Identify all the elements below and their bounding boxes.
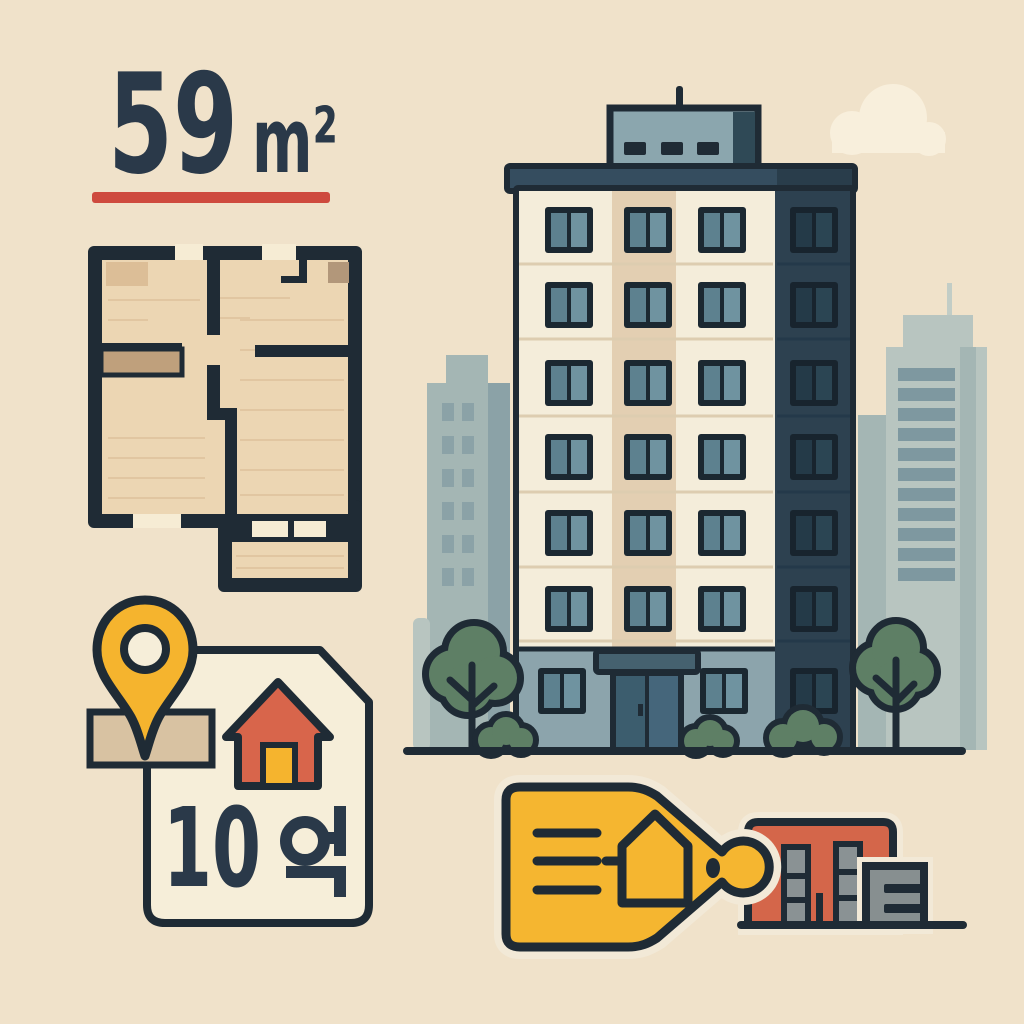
penthouse-vents [624, 142, 719, 155]
building-window [545, 360, 593, 406]
building-window [545, 207, 593, 253]
tag-hole [706, 858, 720, 878]
door-handle [638, 704, 643, 716]
building-window [698, 510, 746, 556]
skyline-right-stripes [898, 368, 955, 581]
pin-hole [124, 628, 166, 670]
door-leaf [649, 676, 678, 750]
building-window [784, 847, 808, 925]
ground-line [737, 921, 967, 929]
lamp-post [816, 893, 823, 925]
building-window [538, 668, 586, 714]
building-window [545, 510, 593, 556]
apartment-building [507, 86, 855, 750]
building-window [790, 510, 838, 556]
building-window [700, 668, 748, 714]
illustration-canvas: 59 m² [0, 0, 1024, 1024]
building-window [545, 434, 593, 480]
floor-plan-fixture [106, 262, 148, 286]
area-underline [92, 192, 330, 203]
building-window [790, 360, 838, 406]
building-window [698, 586, 746, 632]
building-window [698, 207, 746, 253]
building-window [624, 510, 672, 556]
building-window [698, 360, 746, 406]
building-window [790, 282, 838, 328]
building-window [624, 207, 672, 253]
skyline-antenna [947, 283, 952, 317]
floor-plan-balcony [232, 542, 348, 578]
area-value: 59 [108, 44, 238, 205]
building-window [790, 586, 838, 632]
ground-line [403, 747, 966, 755]
building-window [790, 207, 838, 253]
floor-plan-closet [101, 349, 182, 375]
entrance-canopy [596, 651, 698, 672]
building-window [698, 282, 746, 328]
building-window [624, 434, 672, 480]
gray-building [866, 866, 924, 925]
building-window [624, 282, 672, 328]
floor-plan-fixture [328, 262, 349, 283]
building-window [624, 360, 672, 406]
area-unit: m² [252, 89, 338, 194]
real-estate-illustration: 59 m² [0, 0, 1024, 1024]
building-window [836, 844, 860, 925]
price-digits: 10 [163, 784, 261, 912]
building-window [545, 586, 593, 632]
building-window [698, 434, 746, 480]
building-window [545, 282, 593, 328]
building-window [790, 434, 838, 480]
house-door [263, 745, 295, 786]
building-window [624, 586, 672, 632]
